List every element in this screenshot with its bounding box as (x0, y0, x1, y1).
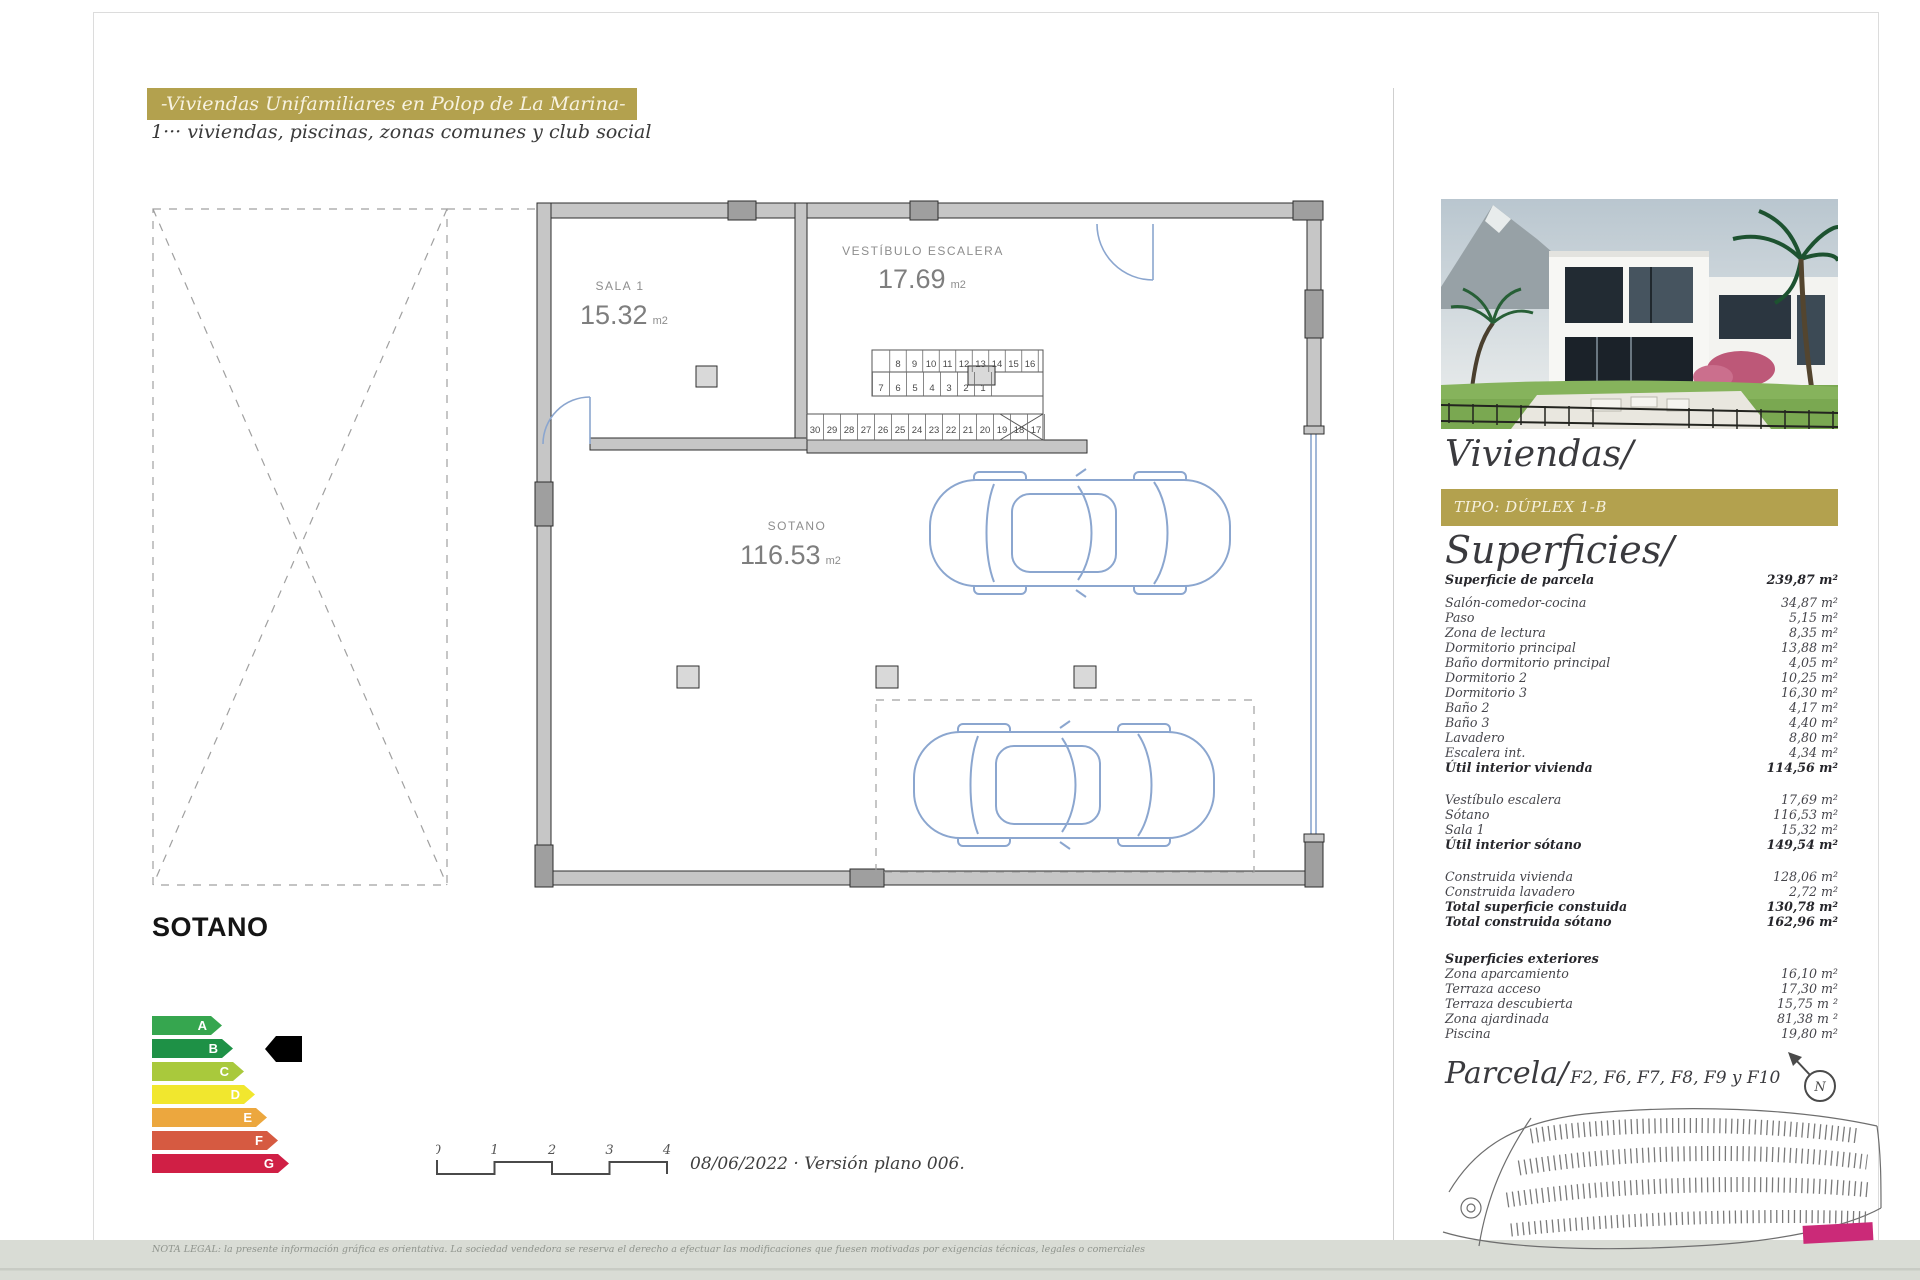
room-area-sotano: 116.53m2 (740, 540, 841, 570)
surface-label: Útil interior vivienda (1445, 760, 1593, 775)
energy-rating-bar: C (152, 1062, 244, 1081)
surface-value: 4,17 m² (1789, 700, 1838, 715)
surface-row: Lavadero 8,80 m² (1445, 730, 1838, 745)
svg-text:25: 25 (895, 425, 906, 436)
surface-label: Dormitorio 3 (1445, 685, 1527, 700)
surface-label: Sala 1 (1445, 822, 1485, 837)
surface-value: 128,06 m² (1773, 869, 1838, 884)
surface-value: 15,32 m² (1781, 822, 1838, 837)
parcela-title: Parcela/ (1445, 1056, 1568, 1091)
surface-value: 15,75 m ² (1777, 996, 1838, 1011)
surface-label: Zona de lectura (1445, 625, 1546, 640)
surface-value: 149,54 m² (1767, 837, 1838, 852)
highlighted-parcela (1803, 1222, 1874, 1244)
surface-row: Zona de lectura 8,35 m² (1445, 625, 1838, 640)
surface-row: Dormitorio 3 16,30 m² (1445, 685, 1838, 700)
energy-rating-letter: E (243, 1110, 252, 1125)
surface-row: Baño dormitorio principal 4,05 m² (1445, 655, 1838, 670)
svg-text:5: 5 (912, 383, 917, 394)
svg-text:19: 19 (997, 425, 1008, 436)
surface-label: Vestíbulo escalera (1445, 792, 1561, 807)
energy-rating-bar: F (152, 1131, 278, 1150)
parcela-heading: Parcela/F2, F6, F7, F8, F9 y F10 (1445, 1056, 1780, 1091)
svg-text:2: 2 (547, 1144, 556, 1158)
surface-row: Terraza descubierta 15,75 m ² (1445, 996, 1838, 1011)
svg-text:18: 18 (1014, 425, 1025, 436)
surface-label: Zona ajardinada (1445, 1011, 1549, 1026)
surface-label: Superficies exteriores (1445, 951, 1599, 966)
svg-text:26: 26 (878, 425, 889, 436)
surface-row: Zona aparcamiento 16,10 m² (1445, 966, 1838, 981)
surface-row: Piscina 19,80 m² (1445, 1026, 1838, 1041)
type-badge: TIPO: DÚPLEX 1-B (1441, 489, 1838, 526)
svg-text:21: 21 (963, 425, 974, 436)
surface-label: Baño 2 (1445, 700, 1489, 715)
surface-value: 16,10 m² (1781, 966, 1838, 981)
legal-note: NOTA LEGAL: la presente información gráf… (152, 1244, 1145, 1255)
energy-rating-letter: B (209, 1041, 218, 1056)
svg-text:28: 28 (844, 425, 855, 436)
surface-row: Superficie de parcela 239,87 m² (1445, 572, 1838, 587)
svg-text:8: 8 (895, 359, 900, 370)
surface-row: Terraza acceso 17,30 m² (1445, 981, 1838, 996)
surface-row: Escalera int. 4,34 m² (1445, 745, 1838, 760)
surface-value: 17,30 m² (1781, 981, 1838, 996)
energy-rating-chart: A B C D E F G (152, 1016, 289, 1177)
surface-row: Vestíbulo escalera 17,69 m² (1445, 792, 1838, 807)
svg-text:17: 17 (1031, 425, 1042, 436)
floor-plan-drawing: 8910111213141516 7654321 302928272625242… (150, 200, 1390, 890)
surface-row: Útil interior sótano 149,54 m² (1445, 837, 1838, 852)
surface-row: Superficies exteriores (1445, 951, 1838, 966)
svg-text:6: 6 (895, 383, 900, 394)
surface-value: 116,53 m² (1773, 807, 1838, 822)
energy-rating-letter: C (220, 1064, 229, 1079)
surface-row: Útil interior vivienda 114,56 m² (1445, 760, 1838, 775)
surface-value: 5,15 m² (1789, 610, 1838, 625)
surface-label: Sótano (1445, 807, 1489, 822)
surface-row: Paso 5,15 m² (1445, 610, 1838, 625)
floor-name-label: SOTANO (152, 912, 269, 943)
svg-text:4: 4 (929, 383, 934, 394)
surface-value: 4,40 m² (1789, 715, 1838, 730)
unexcavated-area (153, 209, 535, 885)
svg-text:7: 7 (878, 383, 883, 394)
stair-flight-lower: 3029282726252423222120191817 (807, 414, 1045, 440)
svg-text:24: 24 (912, 425, 923, 436)
surface-row: Dormitorio principal 13,88 m² (1445, 640, 1838, 655)
surface-label: Baño 3 (1445, 715, 1489, 730)
surface-value: 10,25 m² (1781, 670, 1838, 685)
energy-rating-bar: E (152, 1108, 267, 1127)
surface-label: Construida lavadero (1445, 884, 1575, 899)
surface-value: 4,34 m² (1789, 745, 1838, 760)
stair-flight-upper: 8910111213141516 (890, 350, 1039, 372)
surface-value: 16,30 m² (1781, 685, 1838, 700)
surface-value: 13,88 m² (1781, 640, 1838, 655)
surface-row: Total superficie constuida 130,78 m² (1445, 899, 1838, 914)
sidebar-divider (1393, 88, 1394, 1240)
energy-rating-bar: A (152, 1016, 222, 1035)
svg-text:3: 3 (946, 383, 951, 394)
surface-label: Escalera int. (1445, 745, 1525, 760)
surface-row: Baño 2 4,17 m² (1445, 700, 1838, 715)
svg-text:15: 15 (1008, 359, 1019, 370)
energy-rating-bar: G (152, 1154, 289, 1173)
svg-text:23: 23 (929, 425, 940, 436)
surface-label: Total superficie constuida (1445, 899, 1627, 914)
surface-row: Construida lavadero 2,72 m² (1445, 884, 1838, 899)
car-bottom (914, 721, 1214, 849)
surface-value: 4,05 m² (1789, 655, 1838, 670)
surface-value: 34,87 m² (1781, 595, 1838, 610)
energy-rating-letter: D (231, 1087, 240, 1102)
svg-text:10: 10 (926, 359, 937, 370)
svg-text:29: 29 (827, 425, 838, 436)
surface-label: Dormitorio principal (1445, 640, 1576, 655)
energy-rating-letter: F (255, 1133, 263, 1148)
svg-text:3: 3 (605, 1144, 613, 1158)
parcela-map (1435, 1096, 1883, 1258)
surface-row: Construida vivienda 128,06 m² (1445, 869, 1838, 884)
surface-label: Dormitorio 2 (1445, 670, 1527, 685)
energy-rating-bar: D (152, 1085, 255, 1104)
room-area-vestibulo: 17.69m2 (878, 264, 966, 294)
surface-label: Útil interior sótano (1445, 837, 1581, 852)
svg-text:N: N (1813, 1080, 1826, 1095)
room-name-sotano: SOTANO (768, 519, 827, 533)
map-plot-rows (1507, 1125, 1871, 1230)
svg-text:27: 27 (861, 425, 872, 436)
svg-text:16: 16 (1025, 359, 1036, 370)
room-name-sala: SALA 1 (595, 279, 644, 293)
surface-label: Superficie de parcela (1445, 572, 1594, 587)
svg-text:12: 12 (959, 359, 970, 370)
surface-value: 19,80 m² (1781, 1026, 1838, 1041)
surfaces-title: Superficies/ (1445, 528, 1674, 572)
svg-text:13: 13 (975, 359, 986, 370)
surface-row: Sala 1 15,32 m² (1445, 822, 1838, 837)
surface-label: Baño dormitorio principal (1445, 655, 1610, 670)
svg-text:2: 2 (963, 383, 968, 394)
villa-photo (1441, 199, 1838, 429)
surface-row: Zona ajardinada 81,38 m ² (1445, 1011, 1838, 1026)
energy-rating-letter: G (264, 1156, 274, 1171)
surface-value: 239,87 m² (1767, 572, 1838, 587)
surface-label: Total construida sótano (1445, 914, 1612, 929)
surfaces-table: Superficie de parcela 239,87 m² Salón-co… (1445, 572, 1838, 1041)
car-top (930, 469, 1230, 597)
energy-rating-letter: A (198, 1018, 207, 1033)
scale-bar: 01234 (436, 1144, 676, 1180)
surface-label: Terraza descubierta (1445, 996, 1573, 1011)
svg-text:22: 22 (946, 425, 957, 436)
surface-value: 8,80 m² (1789, 730, 1838, 745)
surface-label: Construida vivienda (1445, 869, 1573, 884)
surface-label: Terraza acceso (1445, 981, 1541, 996)
room-name-vestibulo: VESTÍBULO ESCALERA (842, 243, 1004, 258)
svg-text:11: 11 (943, 359, 953, 370)
surface-value: 114,56 m² (1767, 760, 1838, 775)
room-area-sala: 15.32m2 (580, 300, 668, 330)
surface-row: Salón-comedor-cocina 34,87 m² (1445, 595, 1838, 610)
svg-text:9: 9 (912, 359, 917, 370)
svg-text:1: 1 (980, 383, 985, 394)
plan-version-caption: 08/06/2022 · Versión plano 006. (690, 1154, 965, 1174)
surface-row: Total construida sótano 162,96 m² (1445, 914, 1838, 929)
surface-value: 17,69 m² (1781, 792, 1838, 807)
surface-label: Salón-comedor-cocina (1445, 595, 1586, 610)
staircase: 8910111213141516 7654321 302928272625242… (807, 350, 1045, 440)
surface-label: Paso (1445, 610, 1474, 625)
project-banner: -Viviendas Unifamiliares en Polop de La … (147, 88, 637, 120)
energy-rating-bar: B (152, 1039, 233, 1058)
surface-label: Lavadero (1445, 730, 1505, 745)
svg-text:0: 0 (436, 1144, 441, 1158)
svg-text:1: 1 (490, 1144, 498, 1158)
scale-bar-ticks: 01234 (436, 1144, 671, 1158)
surface-value: 8,35 m² (1789, 625, 1838, 640)
svg-text:4: 4 (662, 1144, 671, 1158)
sidebar-title: Viviendas/ (1445, 434, 1633, 475)
surface-value: 130,78 m² (1767, 899, 1838, 914)
surface-value: 162,96 m² (1767, 914, 1838, 929)
surface-value: 2,72 m² (1789, 884, 1838, 899)
svg-text:14: 14 (992, 359, 1003, 370)
surface-label: Zona aparcamiento (1445, 966, 1569, 981)
project-subtitle: 1··· viviendas, piscinas, zonas comunes … (151, 121, 651, 143)
parcela-subtitle: F2, F6, F7, F8, F9 y F10 (1570, 1068, 1780, 1088)
surface-value: 81,38 m ² (1777, 1011, 1838, 1026)
svg-text:20: 20 (980, 425, 991, 436)
surface-row: Baño 3 4,40 m² (1445, 715, 1838, 730)
surface-label: Piscina (1445, 1026, 1491, 1041)
svg-text:30: 30 (810, 425, 821, 436)
surface-row: Sótano 116,53 m² (1445, 807, 1838, 822)
surface-row: Dormitorio 2 10,25 m² (1445, 670, 1838, 685)
